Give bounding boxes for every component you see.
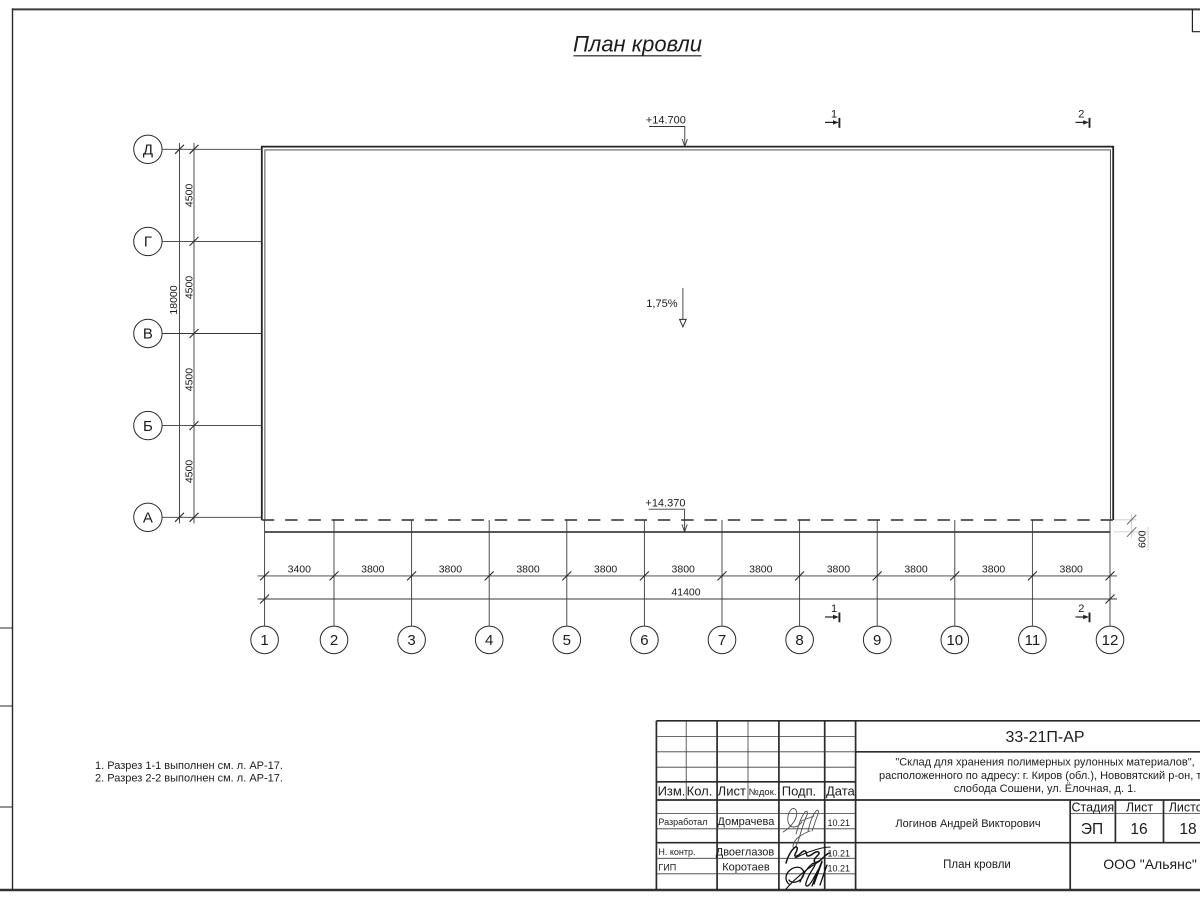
svg-text:4500: 4500 [184,184,196,208]
svg-text:№док.: №док. [749,787,777,798]
svg-text:Домрачева: Домрачева [717,816,775,828]
svg-text:2: 2 [330,632,338,649]
svg-text:10.21: 10.21 [828,818,851,828]
svg-text:В: В [143,326,153,343]
svg-text:3800: 3800 [827,563,851,575]
svg-text:1,75%: 1,75% [646,298,677,310]
svg-text:Коротаев: Коротаев [722,861,770,873]
svg-text:Стадия: Стадия [1071,801,1114,815]
svg-text:6: 6 [640,632,648,649]
svg-text:3800: 3800 [904,563,928,575]
svg-text:ООО "Альянс": ООО "Альянс" [1103,856,1197,872]
svg-text:3800: 3800 [516,563,540,575]
svg-text:План кровли: План кровли [943,859,1011,871]
svg-text:ГИП: ГИП [658,863,676,873]
svg-text:Д: Д [143,142,153,159]
svg-text:"Склад для хранения полимерных: "Склад для хранения полимерных рулонных … [895,757,1194,769]
svg-text:3800: 3800 [439,563,463,575]
svg-text:3800: 3800 [982,563,1006,575]
svg-text:1: 1 [831,603,837,615]
svg-text:слобода Сошени, ул. Ёлочная, д: слобода Сошени, ул. Ёлочная, д. 1. [954,783,1137,795]
svg-text:3400: 3400 [288,563,312,575]
svg-text:Лист: Лист [1126,801,1153,815]
svg-text:3: 3 [407,632,415,649]
svg-text:ЭП: ЭП [1081,821,1103,838]
svg-text:Изм.: Изм. [658,784,686,799]
svg-text:1. Разрез 1-1 выполнен см. л.: 1. Разрез 1-1 выполнен см. л. АР-17. [95,760,283,772]
svg-text:18: 18 [1179,821,1196,838]
svg-text:10.21: 10.21 [828,864,851,874]
svg-text:Б: Б [143,418,153,435]
svg-text:4500: 4500 [184,460,196,484]
svg-text:12: 12 [1102,632,1119,649]
svg-text:Разработал: Разработал [658,817,707,827]
svg-text:Дата: Дата [826,784,856,799]
svg-text:2: 2 [1078,108,1084,120]
svg-text:41400: 41400 [671,586,700,598]
svg-text:8: 8 [795,632,803,649]
svg-text:Логинов Андрей Викторович: Логинов Андрей Викторович [895,818,1040,830]
svg-text:3800: 3800 [594,563,618,575]
svg-text:2: 2 [1078,603,1084,615]
svg-text:3800: 3800 [361,563,385,575]
svg-text:Двоеглазов: Двоеглазов [716,846,775,858]
svg-text:Листов: Листов [1169,801,1200,815]
svg-text:1: 1 [831,108,837,120]
svg-text:2. Разрез 2-2 выполнен см. л.: 2. Разрез 2-2 выполнен см. л. АР-17. [95,773,283,785]
svg-text:А: А [143,510,153,527]
svg-text:+14.700: +14.700 [646,114,686,126]
svg-text:10: 10 [946,632,963,649]
svg-text:1: 1 [260,632,268,649]
svg-text:18000: 18000 [168,285,180,314]
svg-text:11: 11 [1025,632,1041,649]
svg-text:Кол.: Кол. [687,784,713,799]
svg-text:Н. контр.: Н. контр. [658,847,695,857]
svg-text:33-21П-АР: 33-21П-АР [1005,729,1084,746]
svg-text:3800: 3800 [672,563,696,575]
svg-text:4500: 4500 [184,368,196,392]
svg-text:+14.370: +14.370 [645,498,685,510]
svg-text:16: 16 [1130,821,1147,838]
svg-text:расположенного по адресу: г. К: расположенного по адресу: г. Киров (обл.… [879,770,1200,782]
svg-text:3800: 3800 [749,563,773,575]
svg-text:600: 600 [1137,530,1149,548]
svg-text:4: 4 [485,632,493,649]
svg-text:10.21: 10.21 [828,849,851,859]
svg-text:Г: Г [144,234,152,251]
svg-text:5: 5 [563,632,571,649]
svg-text:План кровли: План кровли [573,32,702,57]
svg-text:Лист: Лист [718,784,746,799]
svg-text:4500: 4500 [184,276,196,300]
svg-text:Подп.: Подп. [782,784,817,799]
svg-text:7: 7 [718,632,726,649]
svg-text:9: 9 [873,632,881,649]
svg-text:3800: 3800 [1060,563,1084,575]
